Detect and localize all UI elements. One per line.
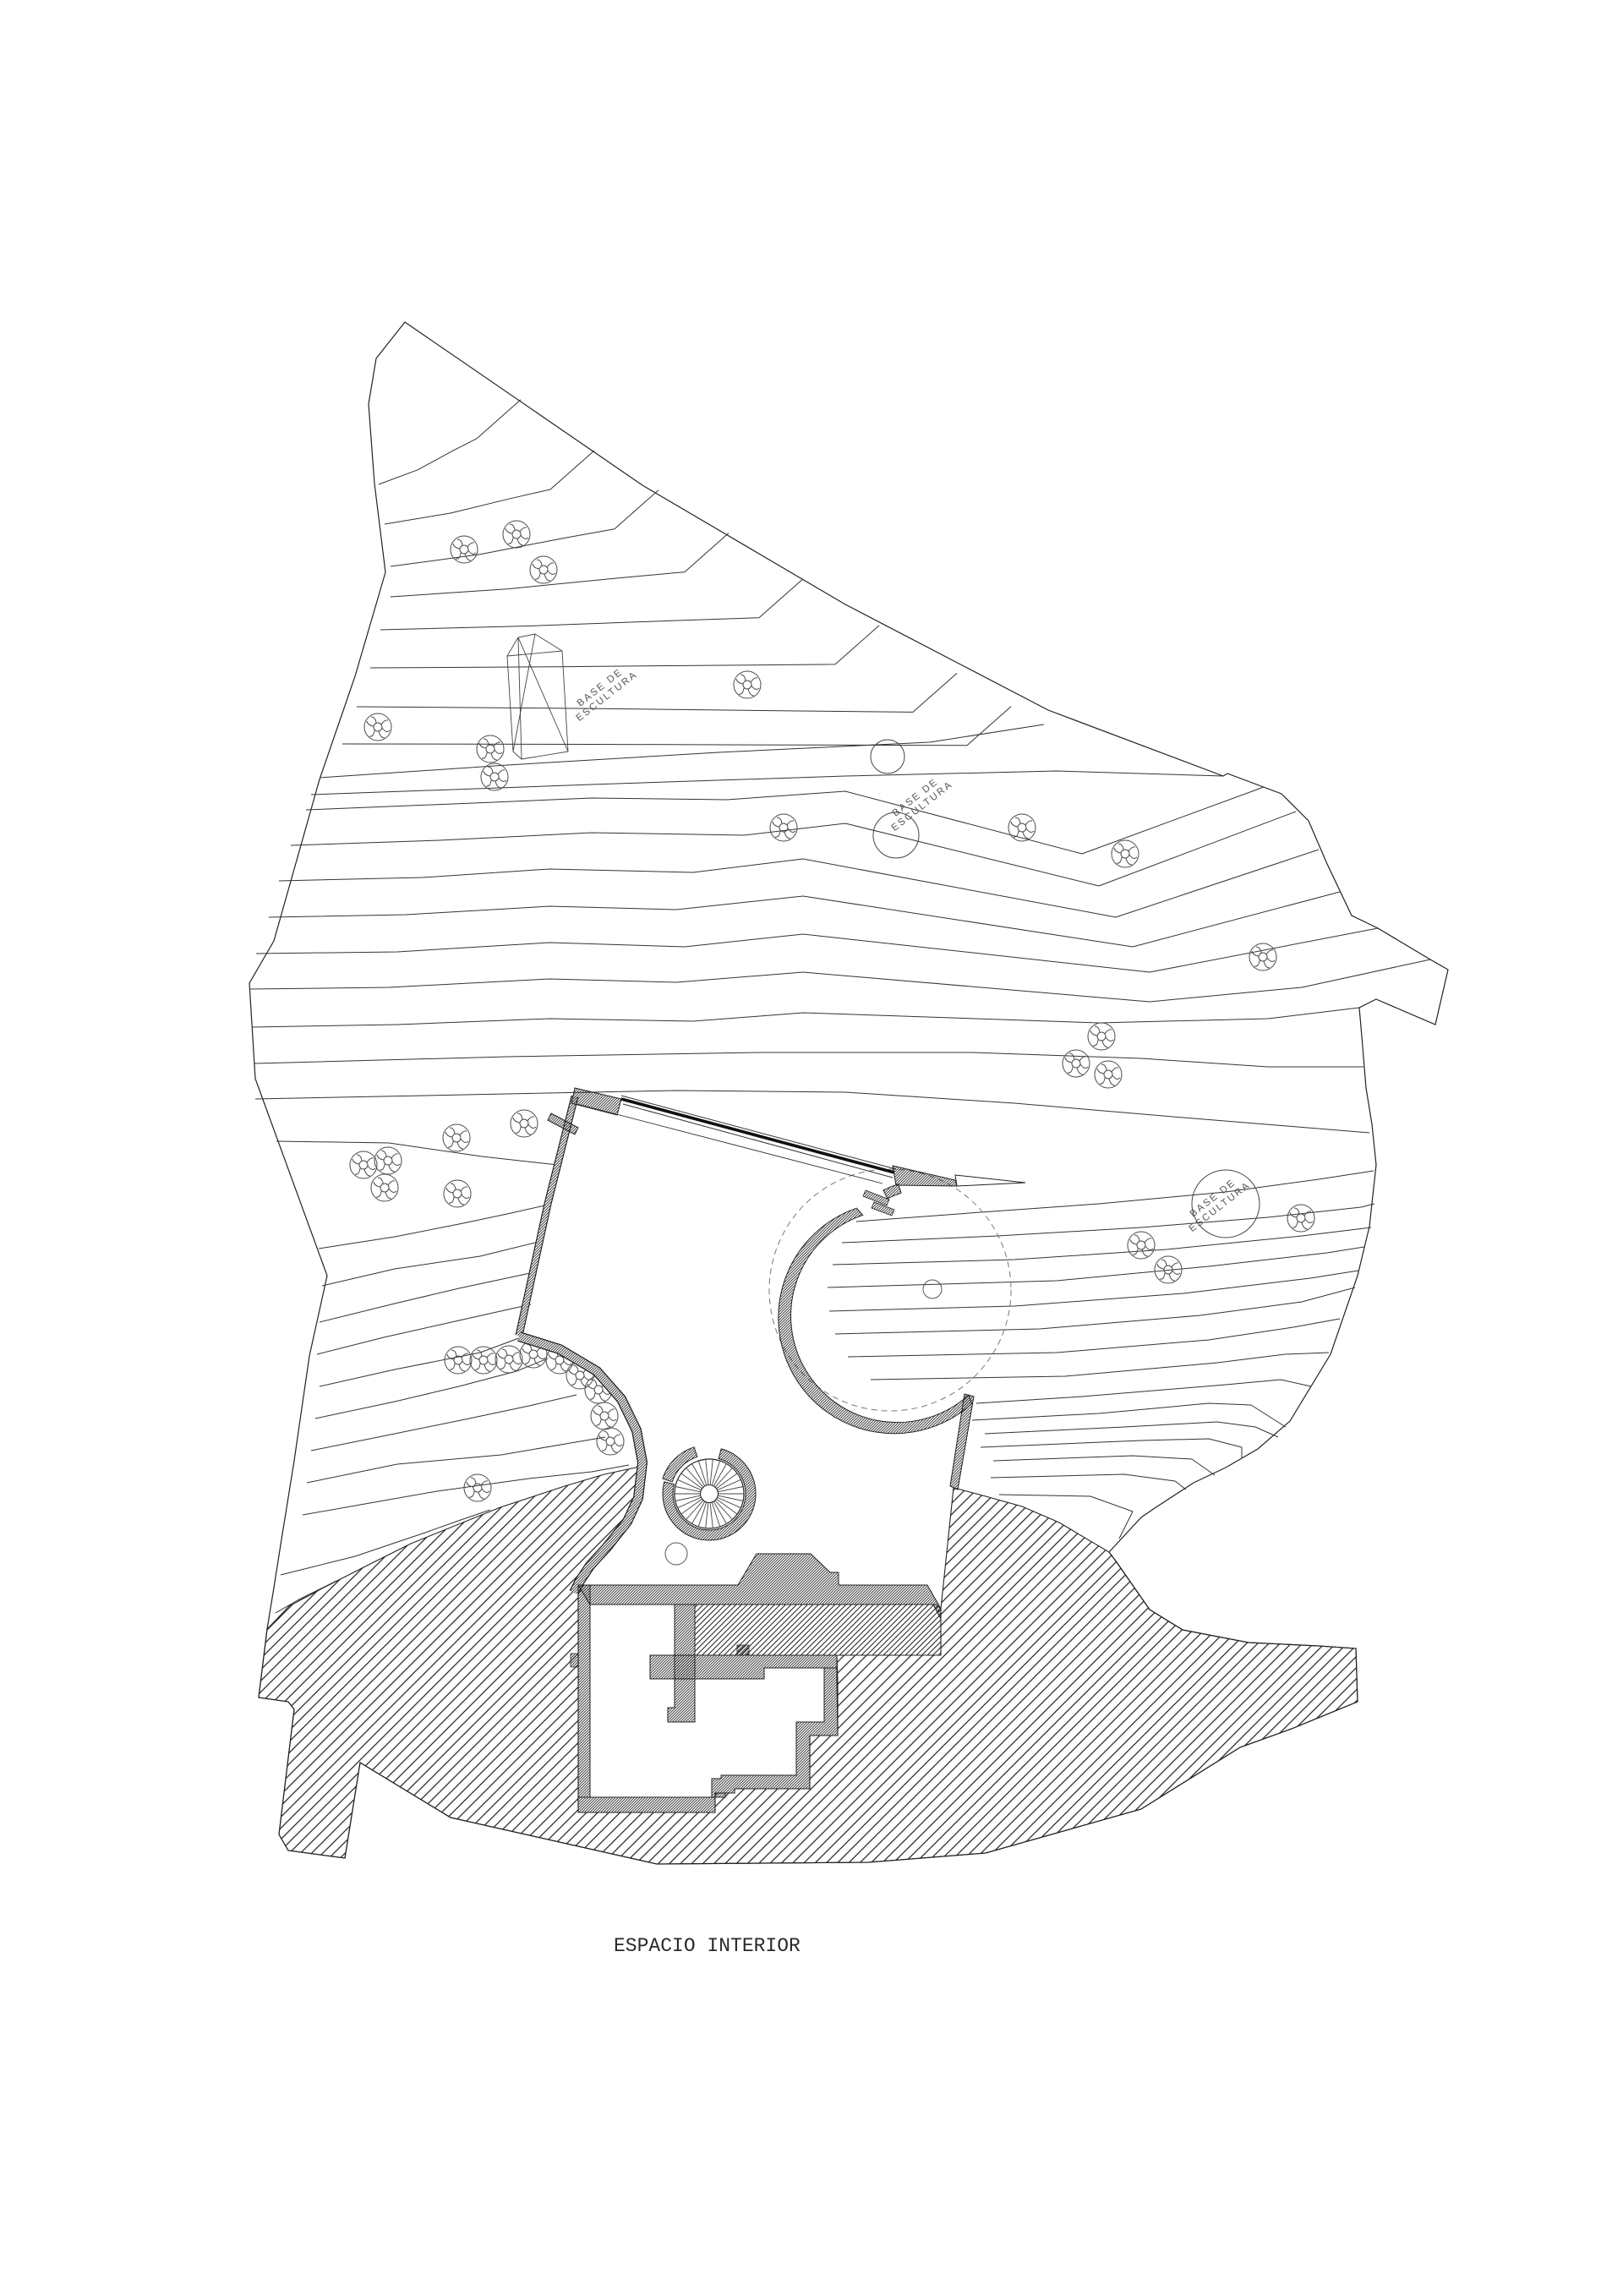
svg-text:ESPACIO INTERIOR: ESPACIO INTERIOR	[614, 1935, 801, 1957]
